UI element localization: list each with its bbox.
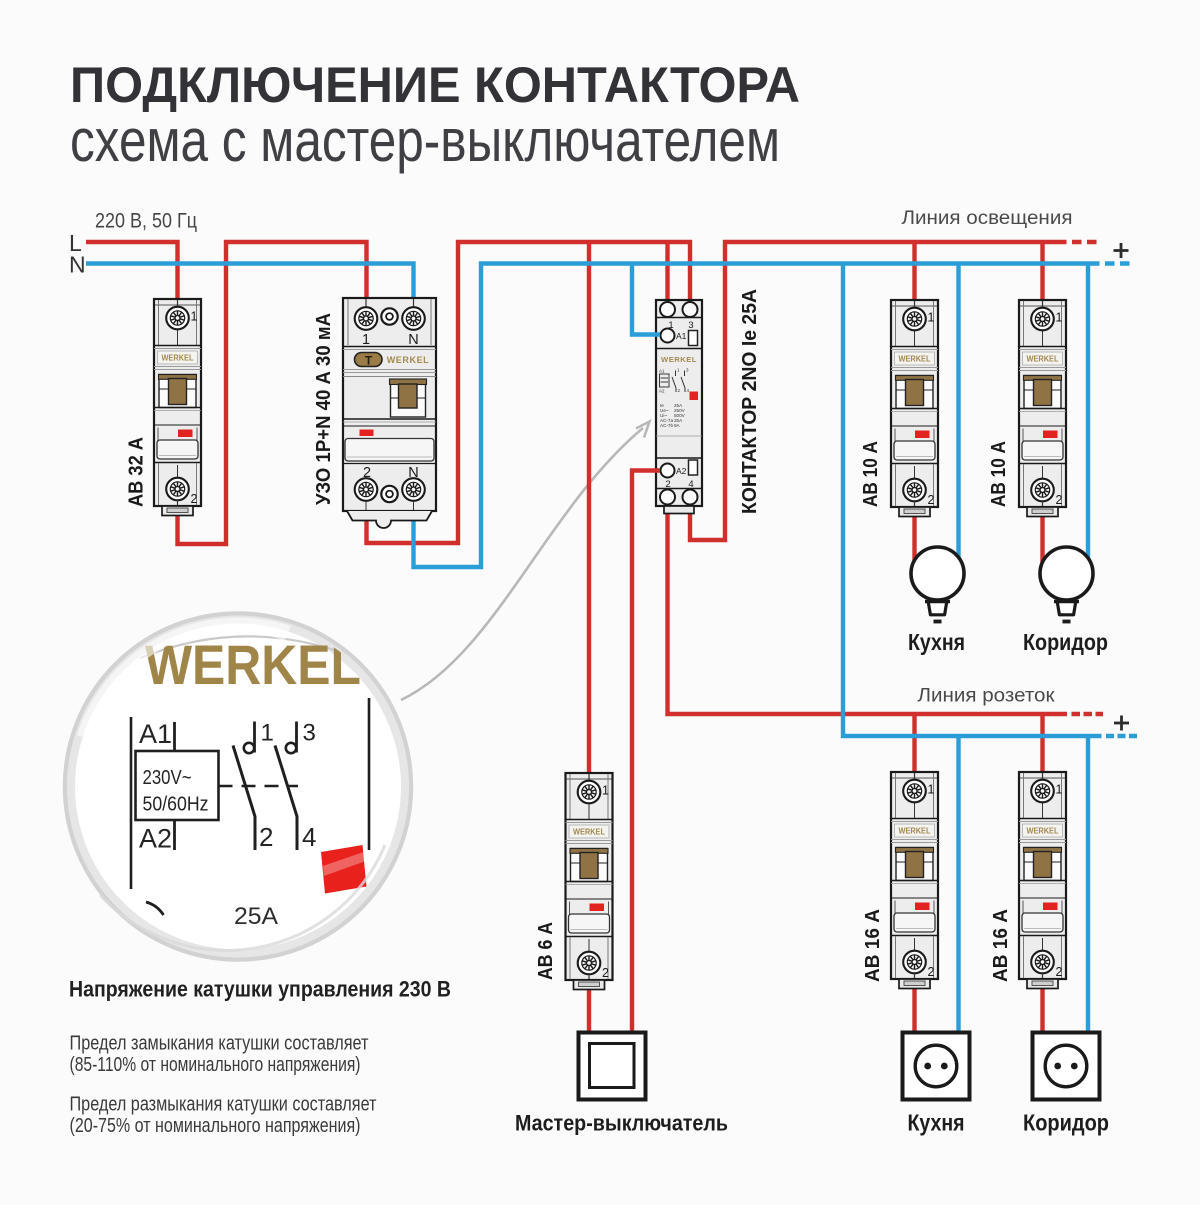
svg-text:3: 3 [303, 720, 316, 747]
svg-text:N: N [408, 332, 418, 348]
svg-text:WERKEL: WERKEL [661, 355, 697, 364]
svg-text:АВ 6 А: АВ 6 А [535, 922, 557, 980]
svg-text:AC-7b: AC-7b [660, 423, 673, 428]
svg-text:A1: A1 [676, 331, 687, 341]
svg-text:Предел размыкания катушки сост: Предел размыкания катушки составляет [70, 1094, 377, 1116]
svg-text:A2: A2 [659, 389, 665, 394]
svg-text:АВ 10 А: АВ 10 А [860, 441, 882, 507]
svg-text:9A: 9A [674, 423, 681, 428]
svg-text:220 В, 50 Гц: 220 В, 50 Гц [95, 209, 197, 233]
svg-text:схема с мастер-выключателем: схема с мастер-выключателем [70, 107, 780, 174]
svg-text:КОНТАКТОР 2NO Ie 25А: КОНТАКТОР 2NO Ie 25А [739, 289, 761, 514]
svg-text:(20-75% от номинального напряж: (20-75% от номинального напряжения) [70, 1115, 361, 1137]
svg-text:T: T [365, 354, 373, 368]
svg-text:Линия розеток: Линия розеток [918, 685, 1055, 707]
svg-text:N: N [69, 252, 86, 278]
svg-text:Кухня: Кухня [908, 629, 965, 655]
svg-text:1: 1 [261, 720, 274, 747]
svg-text:A2: A2 [676, 466, 687, 476]
svg-text:50/60Hz: 50/60Hz [143, 794, 209, 816]
svg-text:ПОДКЛЮЧЕНИЕ КОНТАКТОРА: ПОДКЛЮЧЕНИЕ КОНТАКТОРА [70, 57, 800, 113]
svg-text:АВ 16 А: АВ 16 А [990, 909, 1012, 982]
svg-text:Линия освещения: Линия освещения [902, 207, 1073, 229]
svg-text:(85-110% от номинального напря: (85-110% от номинального напряжения) [70, 1054, 361, 1076]
svg-text:A1: A1 [659, 369, 665, 374]
svg-text:WERKEL: WERKEL [387, 355, 430, 365]
svg-text:Коридор: Коридор [1023, 629, 1108, 655]
svg-text:230V~: 230V~ [143, 767, 192, 789]
svg-text:АВ 32 А: АВ 32 А [126, 437, 148, 507]
svg-text:Кухня: Кухня [908, 1110, 965, 1136]
svg-text:Мастер-выключатель: Мастер-выключатель [515, 1111, 728, 1136]
svg-text:Напряжение катушки управления: Напряжение катушки управления 230 В [69, 977, 451, 1002]
svg-text:A2: A2 [139, 824, 172, 854]
svg-text:2: 2 [259, 822, 273, 852]
svg-text:A1: A1 [139, 719, 172, 749]
svg-text:3: 3 [688, 320, 693, 331]
svg-text:УЗО 1Р+N 40 А 30 мА: УЗО 1Р+N 40 А 30 мА [313, 313, 335, 505]
svg-text:25A: 25A [234, 903, 278, 930]
svg-text:АВ 16 А: АВ 16 А [862, 909, 884, 982]
svg-text:4: 4 [302, 822, 316, 852]
svg-text:Коридор: Коридор [1023, 1110, 1109, 1136]
svg-text:Предел замыкания катушки соста: Предел замыкания катушки составляет [70, 1033, 369, 1055]
svg-text:1: 1 [362, 332, 370, 348]
svg-text:АВ 10 А: АВ 10 А [988, 441, 1010, 507]
